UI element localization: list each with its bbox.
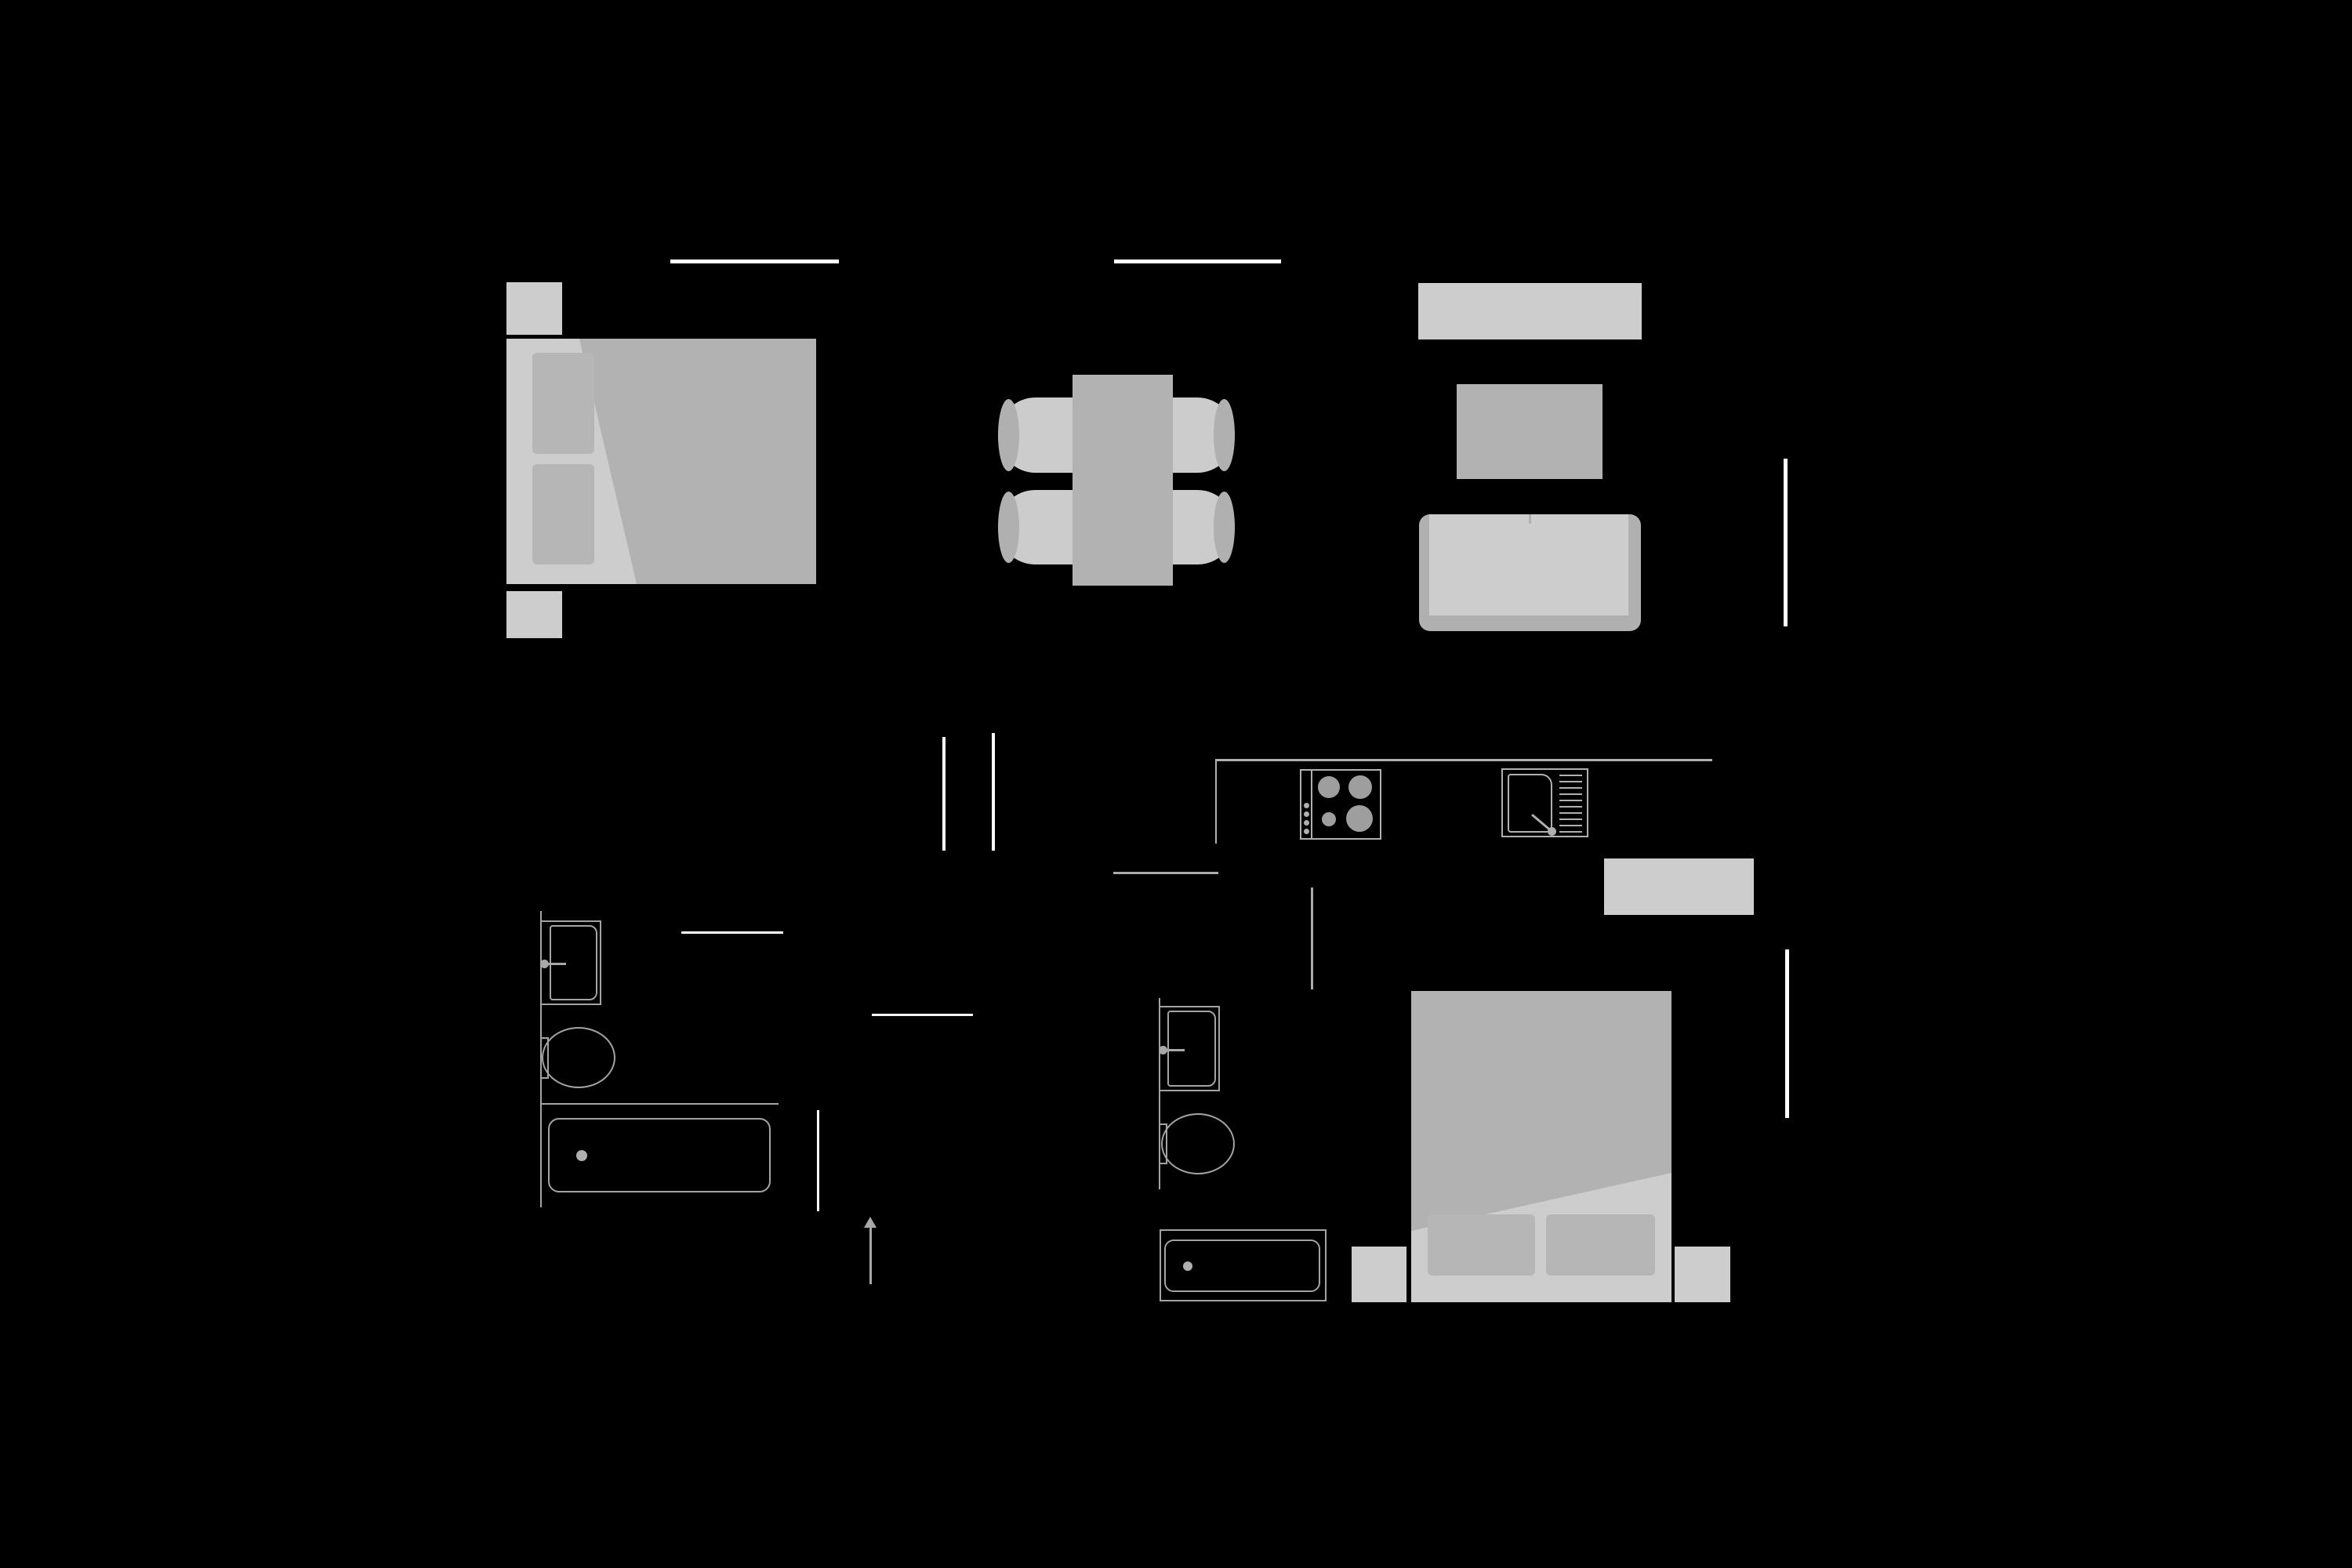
bedroom2-window bbox=[1785, 949, 1789, 1118]
kitchen-hob-knob-1 bbox=[1304, 803, 1309, 808]
bedroom2-nightstand-left bbox=[1352, 1247, 1406, 1302]
kitchen-hob-control-divider bbox=[1311, 769, 1312, 840]
kitchen-island bbox=[1604, 858, 1754, 915]
kitchen-hob-burner-bottom-left bbox=[1322, 812, 1336, 826]
bathroom1-wall-bottom bbox=[540, 1103, 779, 1105]
kitchen-counter-edge-top bbox=[1215, 759, 1712, 761]
kitchen-drainer-bar-4 bbox=[1559, 793, 1582, 795]
living-window bbox=[1784, 459, 1788, 626]
kitchen-drainer-bar-6 bbox=[1559, 806, 1582, 808]
bathroom1-bathtub-drain bbox=[576, 1150, 587, 1161]
dining-chair-top-left-cap bbox=[998, 399, 1019, 471]
kitchen-drainer-bar-8 bbox=[1559, 818, 1582, 820]
kitchen-hob-knob-4 bbox=[1304, 829, 1309, 834]
kitchen-drainer-bar-5 bbox=[1559, 800, 1582, 801]
kitchen-hob-burner-bottom-right bbox=[1346, 805, 1373, 832]
bedroom2-pillow-left bbox=[1428, 1214, 1535, 1276]
floor-plan bbox=[0, 0, 2352, 1568]
entrance-arrow-shaft bbox=[869, 1228, 872, 1284]
kitchen-drainer-bar-2 bbox=[1559, 781, 1582, 782]
kitchen-drainer-bar-1 bbox=[1559, 775, 1582, 776]
bedroom1-nightstand-top bbox=[506, 282, 562, 335]
bedroom2-pillow-right bbox=[1546, 1214, 1655, 1276]
hall-door-line-left bbox=[942, 737, 946, 851]
bathroom1-toilet-bowl bbox=[542, 1027, 615, 1088]
kitchen-sink-faucet-dot bbox=[1548, 827, 1556, 836]
bathroom2-toilet-bowl bbox=[1161, 1113, 1235, 1174]
bathroom1-door-line bbox=[817, 1110, 819, 1211]
bedroom1-pillow-left bbox=[532, 353, 594, 454]
kitchen-drainer-bar-3 bbox=[1559, 787, 1582, 789]
living-sideboard bbox=[1418, 283, 1642, 339]
kitchen-wall-segment-vertical bbox=[1311, 887, 1313, 989]
hall-door-line-right bbox=[992, 733, 995, 851]
bathroom1-mirror-line bbox=[681, 931, 783, 934]
bedroom2-nightstand-right bbox=[1675, 1247, 1730, 1302]
kitchen-wall-segment-horizontal bbox=[1113, 872, 1218, 874]
bathroom2-bathtub-drain bbox=[1183, 1261, 1192, 1271]
entrance-arrow-head bbox=[864, 1217, 877, 1228]
dining-chair-top-right-cap bbox=[1214, 399, 1235, 471]
kitchen-hob-knob-2 bbox=[1304, 811, 1309, 817]
living-coffee-table bbox=[1457, 384, 1602, 479]
kitchen-sink-basin bbox=[1508, 774, 1552, 833]
kitchen-hob-burner-top-right bbox=[1348, 775, 1372, 799]
bedroom1-nightstand-bottom bbox=[506, 591, 562, 638]
dining-chair-bottom-right-cap bbox=[1214, 492, 1235, 563]
hall-opening-line bbox=[872, 1014, 973, 1016]
kitchen-hob-burner-top-left bbox=[1318, 776, 1340, 798]
bathroom1-sink-tap-arm bbox=[545, 963, 566, 965]
kitchen-drainer-bar-7 bbox=[1559, 812, 1582, 814]
living-sofa-seat bbox=[1429, 514, 1628, 615]
kitchen-counter-edge-left bbox=[1215, 759, 1217, 844]
bedroom1-pillow-right bbox=[532, 464, 594, 564]
living-sofa-cushion-divider bbox=[1529, 514, 1531, 524]
kitchen-hob-knob-3 bbox=[1304, 820, 1309, 826]
dining-chair-bottom-left-cap bbox=[998, 492, 1019, 563]
dining-table bbox=[1073, 375, 1173, 586]
kitchen-drainer-bar-10 bbox=[1559, 831, 1582, 833]
bedroom1-window bbox=[670, 260, 839, 263]
kitchen-drainer-bar-9 bbox=[1559, 825, 1582, 826]
bathroom2-sink-tap-arm bbox=[1163, 1049, 1185, 1051]
dining-window bbox=[1114, 260, 1281, 263]
